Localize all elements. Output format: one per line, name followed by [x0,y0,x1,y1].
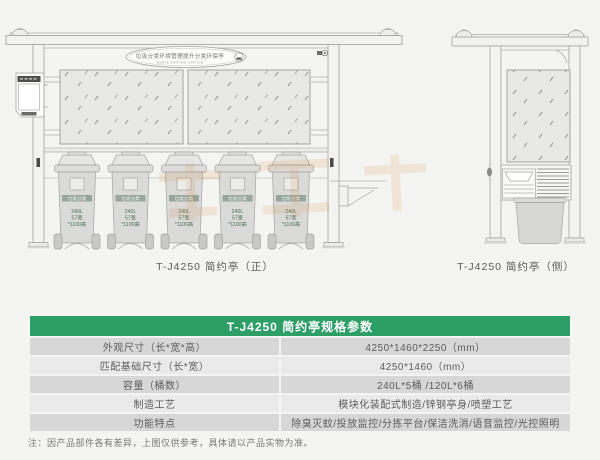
control-panel-box [16,73,48,117]
spec-label: 容量（桶数） [30,376,279,393]
table-row: 匹配基础尺寸（长*宽） 4250*1460（mm） [30,357,570,374]
product-spec-sheet: 垃圾分类 240L 57宽 *1100高 [0,0,600,460]
spec-label: 外观尺寸（长*宽*高） [30,338,279,355]
side-roof [452,30,588,46]
table-row: 功能特点 除臭灭蚊/投放监控/分拣平台/保洁洗消/语音监控/光控照明 [30,414,570,431]
trash-bin [54,152,100,249]
door-knob [487,168,492,177]
dome-lamp-icon [568,30,584,37]
glass-panel [507,70,570,162]
trash-bin [161,152,207,249]
table-row: 容量（桶数） 240L*5桶 /120L*6桶 [30,376,570,393]
side-view-caption: T-J4250 简约亭（侧） [436,259,596,274]
front-view-caption: T-J4250 简约亭（正） [0,259,430,274]
camera-icon [317,50,328,56]
side-view-drawing [430,20,600,260]
glass-panel [60,70,183,144]
sign-title: 垃圾分类环境管理提升分类环保亭 [136,52,225,60]
roof-bracket [556,50,567,63]
trash-bin [268,152,314,249]
sign-emblem-icon [235,53,243,61]
side-trash-bin [514,198,566,244]
front-roof [6,29,402,45]
spec-value: 4250*1460*2250（mm） [281,338,570,355]
footnote: 注：因产品部件各有差异，上图仅供参考，具体请以产品实物为准。 [28,436,313,449]
spec-value: 4250*1460（mm） [281,357,570,374]
spec-value: 240L*5桶 /120L*6桶 [281,376,570,393]
spec-value: 除臭灭蚊/投放监控/分拣平台/保洁洗消/语音监控/光控照明 [281,414,570,431]
trash-bin [108,152,154,249]
spec-table: T-J4250 简约亭规格参数 外观尺寸（长*宽*高） 4250*1460*22… [30,316,570,431]
front-view-drawing: 垃圾分类 240L 57宽 *1100高 [0,20,430,260]
table-row: 外观尺寸（长*宽*高） 4250*1460*2250（mm） [30,338,570,355]
station-sign: 垃圾分类环境管理提升分类环保亭 WASTE SORTING STATION [126,47,246,68]
trash-bin [215,152,261,249]
table-row: 制造工艺 模块化装配式制造/锌钢亭身/喷塑工艺 [30,395,570,412]
spec-label: 制造工艺 [30,395,279,412]
spec-label: 匹配基础尺寸（长*宽） [30,357,279,374]
spec-value: 模块化装配式制造/锌钢亭身/喷塑工艺 [281,395,570,412]
dome-lamp-icon [380,29,396,36]
dome-lamp-icon [456,30,472,37]
sign-subtitle: WASTE SORTING STATION [157,61,204,65]
dome-lamp-icon [12,29,28,36]
spec-table-title: T-J4250 简约亭规格参数 [30,316,570,336]
spec-label: 功能特点 [30,414,279,431]
glass-panel [188,70,310,144]
